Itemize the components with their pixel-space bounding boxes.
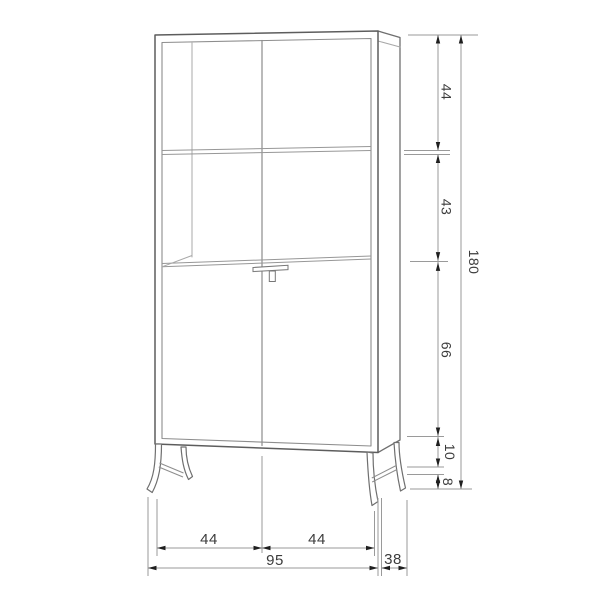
arrow-right (254, 546, 263, 550)
dim-bottom-left-half-label: 44 (200, 531, 218, 548)
dim-depth-label: 38 (384, 551, 402, 568)
front-frame-inner (162, 39, 371, 447)
arrowheads (148, 35, 463, 570)
arrow-left (262, 546, 271, 550)
shelf-lines (162, 147, 371, 267)
arrow-up (436, 438, 440, 447)
dim-middle-section-label: 43 (439, 199, 455, 216)
side-panel-inner-line (378, 41, 400, 47)
leg-front-left (147, 444, 162, 493)
desk-handle (253, 265, 288, 281)
desk-left-wedge (162, 256, 192, 267)
dim-door-section-label: 66 (439, 342, 455, 359)
leg-front-right (367, 452, 378, 506)
arrow-left (157, 546, 166, 550)
front-frame-outer (155, 31, 378, 453)
arrow-right (366, 546, 375, 550)
dim-base-clearance-label: 10 (442, 444, 458, 461)
upper-shelf-front (162, 147, 371, 151)
dimension-lines (148, 35, 461, 568)
extension-lines (148, 35, 478, 576)
dim-top-section-label: 44 (439, 84, 455, 101)
leg-rear-left (181, 447, 193, 480)
arrow-down (436, 428, 440, 437)
legs (147, 443, 406, 506)
cabinet-dimension-drawing: 44 43 66 10 8 180 44 44 95 38 (0, 0, 600, 600)
drawing-canvas: 44 43 66 10 8 180 44 44 95 38 (0, 0, 600, 600)
arrow-up (436, 155, 440, 164)
dim-foot-height-label: 8 (440, 478, 456, 486)
dimension-labels: 44 43 66 10 8 180 44 44 95 38 (200, 84, 482, 569)
dim-total-width-label: 95 (266, 552, 284, 569)
stretchers (159, 463, 397, 482)
handle-tab (269, 271, 275, 282)
arrow-down (459, 481, 463, 490)
arrow-down (436, 459, 440, 468)
stretcher-left-top (160, 463, 184, 473)
arrow-up (459, 35, 463, 44)
dim-bottom-right-half-label: 44 (308, 531, 326, 548)
arrow-left (148, 566, 157, 570)
cabinet-body (155, 31, 400, 453)
leg-rear-right (394, 443, 406, 492)
side-panel (378, 31, 400, 453)
arrow-down (436, 252, 440, 261)
arrow-down (436, 142, 440, 151)
dim-total-height-label: 180 (466, 250, 482, 275)
arrow-right (370, 566, 379, 570)
upper-shelf-bottom (162, 151, 371, 155)
stretcher-left-bottom (159, 467, 183, 477)
arrow-down (436, 481, 440, 490)
arrow-up (436, 262, 440, 271)
arrow-up (436, 35, 440, 44)
